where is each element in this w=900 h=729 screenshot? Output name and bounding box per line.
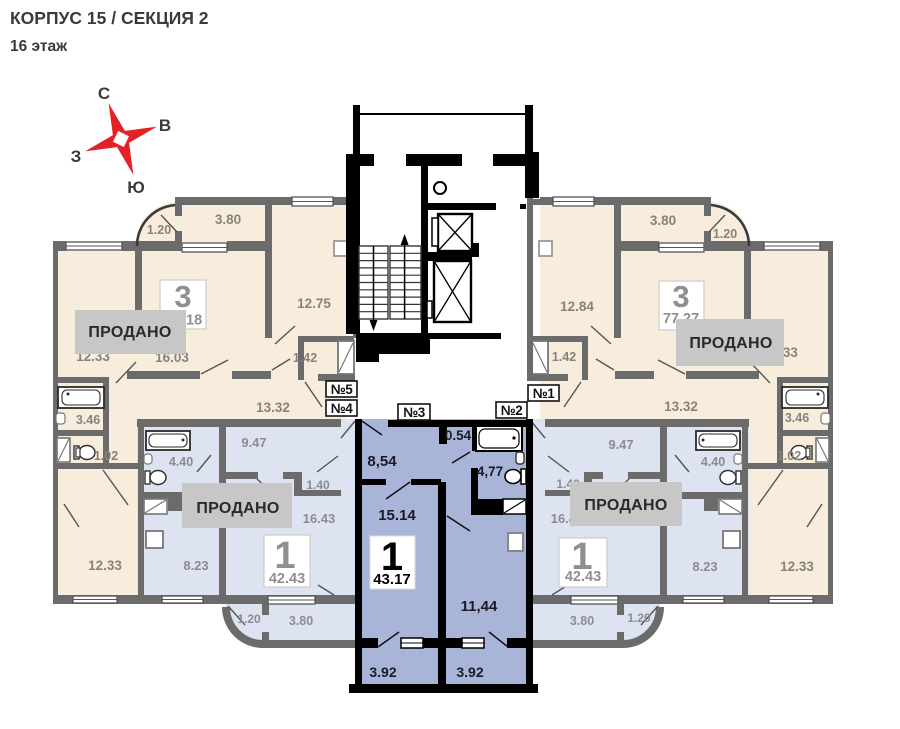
svg-text:43.17: 43.17 [373,571,411,588]
svg-text:8.23: 8.23 [183,558,208,573]
svg-text:12.33: 12.33 [88,558,122,573]
svg-text:4.40: 4.40 [701,455,725,469]
svg-text:42.43: 42.43 [565,569,601,585]
svg-text:1.02: 1.02 [777,449,801,463]
svg-text:КОРПУС 15 / СЕКЦИЯ 2: КОРПУС 15 / СЕКЦИЯ 2 [10,8,209,28]
svg-text:ПРОДАНО: ПРОДАНО [584,497,667,514]
svg-text:№1: №1 [533,386,556,401]
svg-text:4.40: 4.40 [169,455,193,469]
svg-text:1.20: 1.20 [147,223,171,237]
svg-text:3.80: 3.80 [650,213,676,228]
svg-text:12.75: 12.75 [297,296,331,311]
svg-text:1.02: 1.02 [94,449,118,463]
svg-text:В: В [159,116,171,135]
svg-text:9.47: 9.47 [241,435,266,450]
svg-text:1.20: 1.20 [713,227,737,241]
svg-text:№2: №2 [501,403,523,418]
svg-text:1.40: 1.40 [306,478,330,492]
svg-text:1.42: 1.42 [293,351,317,365]
svg-text:З: З [71,147,82,166]
svg-text:42.43: 42.43 [269,571,305,587]
svg-text:3: 3 [672,279,689,314]
svg-text:12.84: 12.84 [560,299,594,314]
svg-text:4,77: 4,77 [477,464,503,479]
svg-text:0.54: 0.54 [445,428,472,443]
svg-text:13.32: 13.32 [256,400,290,415]
svg-text:3.46: 3.46 [785,411,809,425]
svg-text:9.47: 9.47 [608,437,633,452]
svg-text:8,54: 8,54 [367,453,397,470]
svg-text:Ю: Ю [127,178,145,197]
svg-text:12.33: 12.33 [780,559,814,574]
svg-text:3.80: 3.80 [289,614,313,628]
svg-text:ПРОДАНО: ПРОДАНО [88,324,171,341]
svg-text:1.20: 1.20 [627,611,651,625]
svg-text:8.23: 8.23 [692,559,717,574]
svg-text:3.80: 3.80 [215,212,241,227]
svg-text:16.43: 16.43 [303,511,336,526]
svg-text:3.80: 3.80 [570,614,594,628]
svg-text:1.20: 1.20 [237,612,261,626]
svg-text:3.46: 3.46 [76,413,100,427]
svg-text:ПРОДАНО: ПРОДАНО [196,500,279,517]
svg-text:№4: №4 [331,401,354,416]
svg-text:№5: №5 [331,382,354,397]
svg-text:3.92: 3.92 [456,664,483,680]
svg-text:11,44: 11,44 [461,598,498,615]
svg-text:15.14: 15.14 [378,507,416,524]
svg-text:1.42: 1.42 [552,350,576,364]
svg-text:3: 3 [174,279,191,314]
svg-text:16 этаж: 16 этаж [10,38,68,55]
svg-text:ПРОДАНО: ПРОДАНО [689,335,772,352]
svg-text:№3: №3 [403,405,426,420]
svg-text:13.32: 13.32 [664,399,698,414]
svg-text:С: С [98,84,110,103]
svg-text:3.92: 3.92 [369,664,396,680]
